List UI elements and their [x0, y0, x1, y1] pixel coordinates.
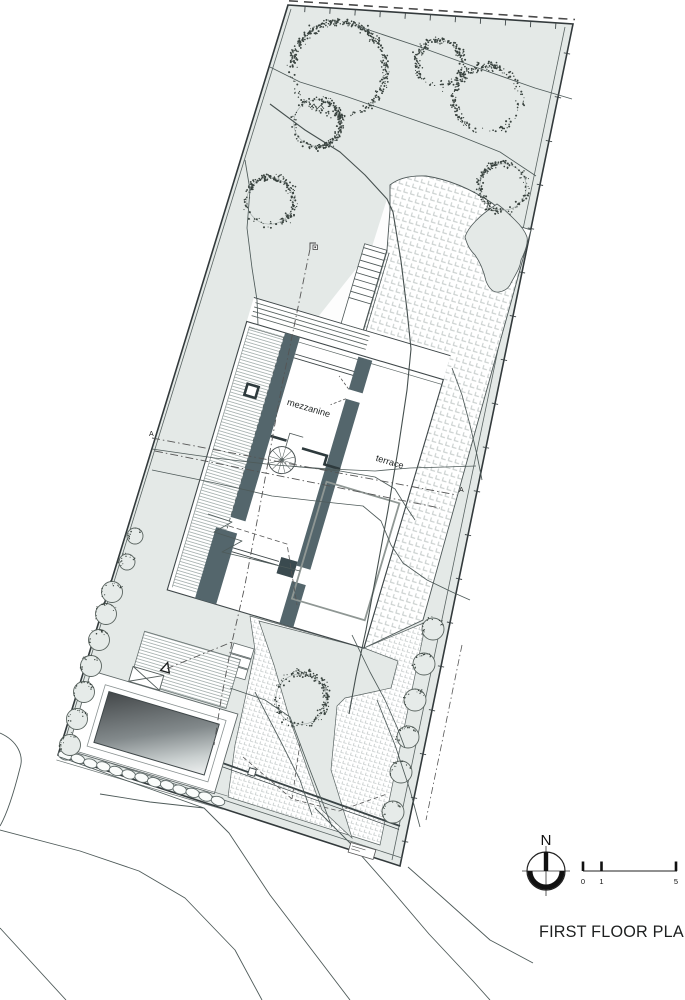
- svg-text:1: 1: [599, 877, 603, 886]
- svg-text:0: 0: [581, 877, 585, 886]
- svg-text:5: 5: [674, 877, 678, 886]
- svg-text:FIRST FLOOR PLAN: FIRST FLOOR PLAN: [539, 923, 685, 941]
- svg-text:A: A: [459, 487, 464, 494]
- svg-text:A: A: [149, 431, 154, 438]
